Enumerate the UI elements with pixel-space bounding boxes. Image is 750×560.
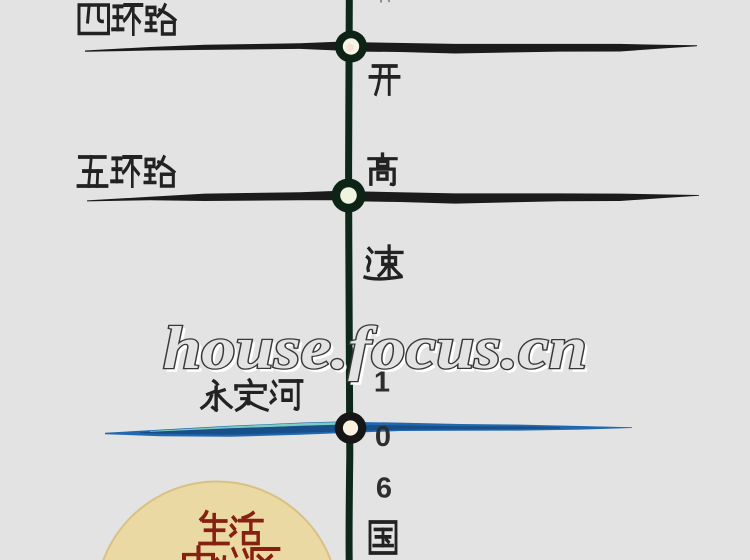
- svg-text:1: 1: [374, 367, 390, 399]
- svg-text:6: 6: [376, 473, 392, 505]
- svg-text:0: 0: [375, 421, 391, 453]
